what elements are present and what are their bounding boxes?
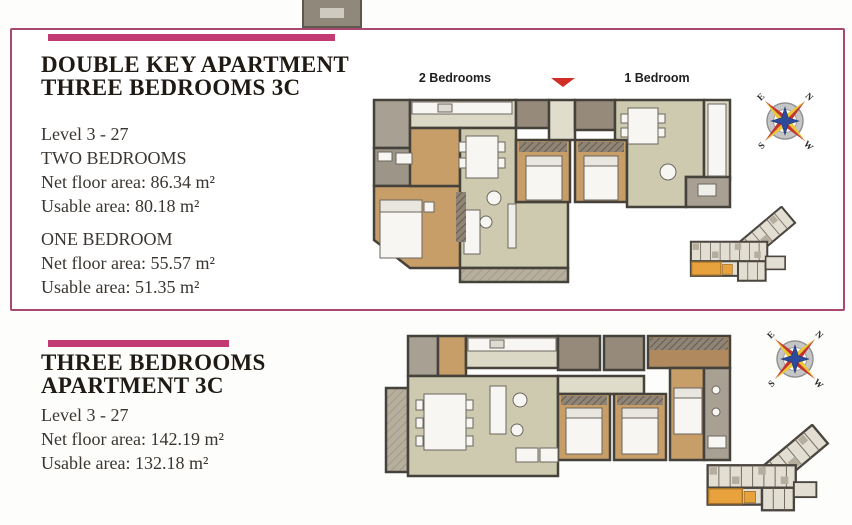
kitchen-counter-2 (708, 104, 726, 176)
round-table (513, 393, 527, 407)
chair (416, 418, 423, 428)
bed-master-pillow (674, 388, 702, 398)
chair (466, 436, 473, 446)
wardrobe-strip (456, 192, 466, 242)
three-bedrooms-title: THREE BEDROOMS APARTMENT 3C (41, 351, 266, 397)
chair (416, 436, 423, 446)
entry-mat (698, 184, 716, 196)
net-floor-area: Net floor area: 86.34 m² (41, 170, 215, 194)
room-core-bath-right (575, 100, 615, 130)
level-range: Level 3 - 27 (41, 122, 215, 146)
armchair (516, 448, 538, 462)
room-hall-1 (410, 128, 460, 186)
coffee-table (480, 216, 492, 228)
floor-plan-double-key: 2 Bedrooms 1 Bedroom (368, 52, 738, 292)
wardrobe-strip (519, 142, 567, 152)
room-bath-2 (604, 336, 644, 370)
coffee-table (511, 424, 523, 436)
bath-fixture (712, 408, 720, 416)
chair (658, 128, 665, 137)
bed-b-pillow (622, 408, 658, 418)
tv-console (508, 204, 516, 248)
room-entry (408, 336, 438, 376)
chair (459, 142, 466, 152)
unit-group-name: ONE BEDROOM (41, 227, 215, 251)
armchair (487, 191, 501, 205)
kitchen-sink (490, 340, 504, 348)
armchair (540, 448, 558, 462)
cropped-page-graphic-inner (320, 8, 344, 18)
compass-bottom (758, 322, 832, 396)
key-plan-top (686, 206, 816, 297)
bath-fixture (712, 386, 720, 394)
balcony-1 (460, 268, 568, 282)
kitchen-counter (468, 338, 556, 351)
double-key-title: DOUBLE KEY APARTMENT THREE BEDROOMS 3C (41, 53, 349, 99)
kitchen-sink (438, 104, 452, 112)
brochure-page: E N S W (0, 0, 852, 525)
chair (621, 114, 628, 123)
bed-a-pillow (566, 408, 602, 418)
level-range: Level 3 - 27 (41, 403, 224, 427)
round-table (660, 164, 676, 180)
double-key-title-line2: THREE BEDROOMS 3C (41, 76, 349, 99)
bed-1-pillow (380, 200, 422, 212)
chair (466, 418, 473, 428)
room-entry-left (374, 100, 410, 148)
wardrobe-strip (617, 396, 663, 405)
double-key-title-line1: DOUBLE KEY APARTMENT (41, 53, 349, 76)
balcony-left (386, 388, 408, 472)
sofa-1 (464, 210, 480, 254)
wardrobe-strip (650, 338, 728, 350)
unit-label-1-bedroom: 1 Bedroom (624, 71, 689, 85)
wardrobe-strip (578, 142, 624, 152)
dining-table (424, 394, 466, 450)
three-bedrooms-title-line1: THREE BEDROOMS (41, 351, 266, 374)
net-floor-area: Net floor area: 142.19 m² (41, 427, 224, 451)
usable-area: Usable area: 80.18 m² (41, 194, 215, 218)
accent-bar-top (48, 34, 335, 41)
chair (466, 400, 473, 410)
usable-area: Usable area: 132.18 m² (41, 451, 224, 475)
dining-table-1 (466, 136, 498, 178)
room-core-bath-left (516, 100, 549, 128)
wardrobe-strip (561, 396, 607, 405)
room-lobby (549, 100, 575, 140)
bath-fixture (378, 152, 392, 161)
accent-bar-bottom (48, 340, 229, 347)
compass-top (748, 84, 822, 158)
dining-table-2 (628, 108, 658, 144)
nightstand (424, 202, 434, 212)
chair (459, 158, 466, 168)
net-floor-area: Net floor area: 55.57 m² (41, 251, 215, 275)
room-corridor (558, 376, 644, 394)
chair (658, 114, 665, 123)
entrance-arrow-icon (551, 78, 575, 87)
room-bath-1 (558, 336, 600, 370)
three-bedrooms-title-line2: APARTMENT 3C (41, 374, 266, 397)
three-bedrooms-specs: Level 3 - 27 Net floor area: 142.19 m² U… (41, 403, 224, 475)
chair (498, 158, 505, 168)
double-key-specs: Level 3 - 27 TWO BEDROOMS Net floor area… (41, 122, 215, 299)
bed-3-pillow (584, 156, 618, 166)
cropped-page-graphic (302, 0, 362, 28)
kitchen-island (490, 386, 506, 434)
room-hall (438, 336, 466, 376)
chair (416, 400, 423, 410)
unit-label-2-bedrooms: 2 Bedrooms (419, 71, 491, 85)
kitchen-counter (412, 102, 512, 114)
floor-plan-three-bedrooms (370, 330, 750, 490)
key-plan-bottom (702, 424, 852, 525)
chair (621, 128, 628, 137)
bed-2-pillow (526, 156, 562, 166)
chair (498, 142, 505, 152)
bath-fixture (396, 153, 412, 164)
unit-group-name: TWO BEDROOMS (41, 146, 215, 170)
usable-area: Usable area: 51.35 m² (41, 275, 215, 299)
